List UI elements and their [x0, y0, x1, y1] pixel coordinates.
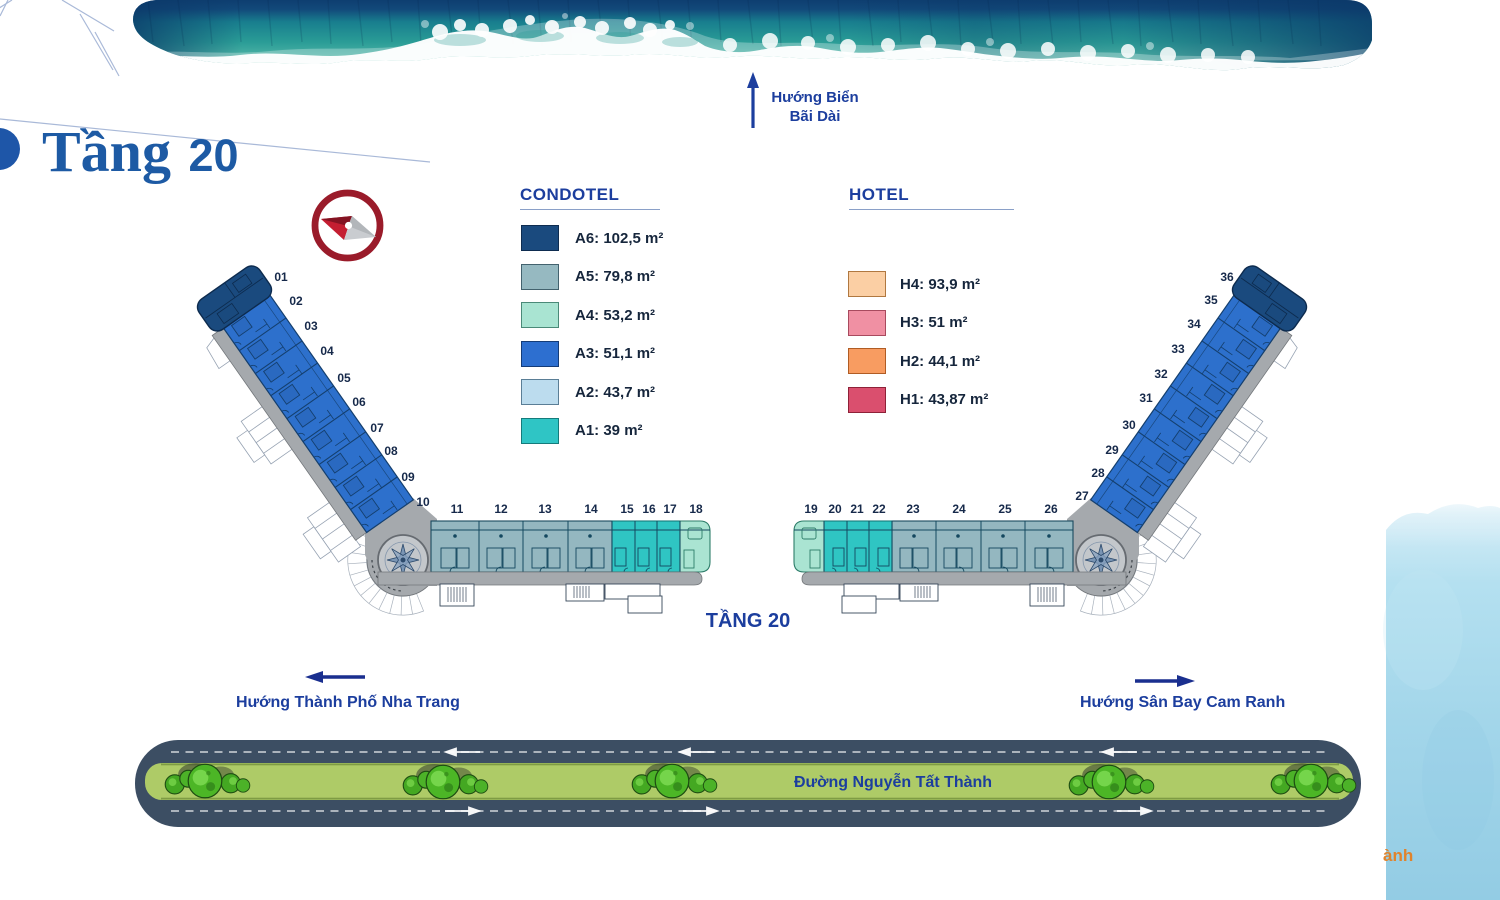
svg-text:31: 31 [1139, 391, 1153, 405]
svg-text:29: 29 [1105, 443, 1119, 457]
svg-text:04: 04 [320, 344, 334, 358]
svg-text:16: 16 [642, 502, 656, 516]
svg-text:18: 18 [689, 502, 703, 516]
svg-text:30: 30 [1122, 418, 1136, 432]
svg-text:28: 28 [1091, 466, 1105, 480]
svg-text:09: 09 [401, 470, 415, 484]
svg-text:08: 08 [384, 444, 398, 458]
svg-text:01: 01 [274, 270, 288, 284]
svg-text:10: 10 [416, 495, 430, 509]
svg-text:13: 13 [538, 502, 552, 516]
svg-text:32: 32 [1154, 367, 1168, 381]
svg-text:02: 02 [289, 294, 303, 308]
svg-text:22: 22 [872, 502, 886, 516]
svg-text:25: 25 [998, 502, 1012, 516]
svg-text:24: 24 [952, 502, 966, 516]
svg-text:03: 03 [304, 319, 318, 333]
svg-text:14: 14 [584, 502, 598, 516]
svg-text:15: 15 [620, 502, 634, 516]
svg-text:05: 05 [337, 371, 351, 385]
svg-text:27: 27 [1075, 489, 1089, 503]
svg-text:19: 19 [804, 502, 818, 516]
svg-text:12: 12 [494, 502, 508, 516]
svg-text:35: 35 [1204, 293, 1218, 307]
svg-text:26: 26 [1044, 502, 1058, 516]
svg-text:20: 20 [828, 502, 842, 516]
svg-text:11: 11 [451, 502, 464, 516]
svg-text:Đường Nguyễn Tất Thành: Đường Nguyễn Tất Thành [794, 772, 992, 791]
svg-text:21: 21 [850, 502, 864, 516]
svg-text:33: 33 [1171, 342, 1185, 356]
svg-text:23: 23 [906, 502, 920, 516]
svg-text:17: 17 [663, 502, 677, 516]
svg-text:34: 34 [1187, 317, 1201, 331]
svg-text:36: 36 [1220, 270, 1234, 284]
svg-text:07: 07 [370, 421, 384, 435]
svg-text:06: 06 [352, 395, 366, 409]
